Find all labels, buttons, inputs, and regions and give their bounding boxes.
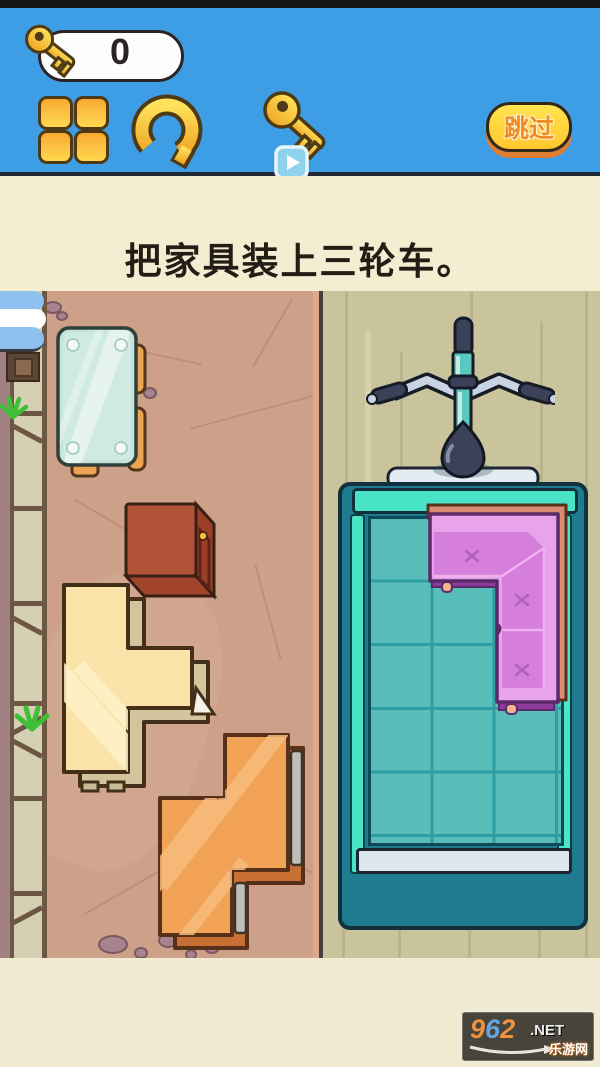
video-badge — [276, 147, 307, 178]
key-icon — [22, 24, 80, 86]
orange-s-piece — [146, 728, 321, 953]
grid-icon — [74, 96, 109, 130]
watermark-site-name: 乐游网 — [549, 1039, 588, 1058]
ladder-slat — [11, 738, 43, 758]
floor-crack — [252, 297, 294, 367]
status-bar — [0, 0, 600, 8]
grid-icon — [38, 96, 73, 130]
plant-icon — [0, 395, 30, 421]
ladder-slat — [10, 796, 44, 801]
skip-label: 跳过 — [504, 109, 554, 145]
game-screen: 0 — [0, 0, 600, 1067]
header: 0 — [0, 8, 600, 176]
tricycle-handlebar — [355, 310, 555, 495]
key-count-value: 0 — [88, 31, 152, 73]
ladder-slat — [11, 423, 43, 443]
instruction-banner: 把家具装上三轮车。 — [0, 176, 600, 294]
wm-digit: 9 — [470, 1014, 485, 1044]
ladder-slat — [11, 905, 43, 925]
ladder-slat — [11, 615, 43, 635]
ladder — [10, 291, 47, 958]
awning-stripe — [0, 291, 44, 311]
crate — [6, 352, 40, 382]
floor-crack — [190, 394, 313, 430]
corner-sofa — [420, 500, 575, 725]
watermark-net: .NET — [530, 1022, 564, 1039]
crate-panel — [14, 358, 33, 377]
wall-strip — [0, 291, 10, 958]
purple-corner-sofa[interactable] — [420, 500, 575, 725]
cart-tailgate — [356, 848, 572, 874]
game-area — [0, 291, 600, 958]
ladder-slat — [10, 601, 44, 606]
instruction-text: 把家具装上三轮车。 — [0, 231, 600, 285]
pebble — [98, 935, 128, 954]
refresh-icon — [142, 105, 192, 165]
ladder-slat — [10, 506, 44, 511]
pebble — [56, 311, 68, 321]
ladder-slat — [10, 891, 44, 896]
orange-wardrobe-piece[interactable] — [146, 728, 321, 953]
awning-stripe — [0, 309, 46, 329]
key-hint-button[interactable] — [248, 90, 338, 185]
floor-crack — [254, 563, 282, 660]
cart-rail-left — [350, 514, 365, 874]
grid-icon — [38, 130, 73, 164]
restart-button[interactable] — [128, 92, 208, 172]
watermark: 962 .NET 乐游网 — [462, 1012, 594, 1061]
awning-stripe — [0, 327, 44, 352]
awning — [0, 291, 46, 351]
wm-digit: 2 — [500, 1014, 515, 1044]
skip-button[interactable]: 跳过 — [486, 102, 572, 152]
levels-button[interactable] — [38, 96, 108, 164]
wm-digit: 6 — [485, 1014, 500, 1044]
grid-icon — [74, 130, 109, 164]
